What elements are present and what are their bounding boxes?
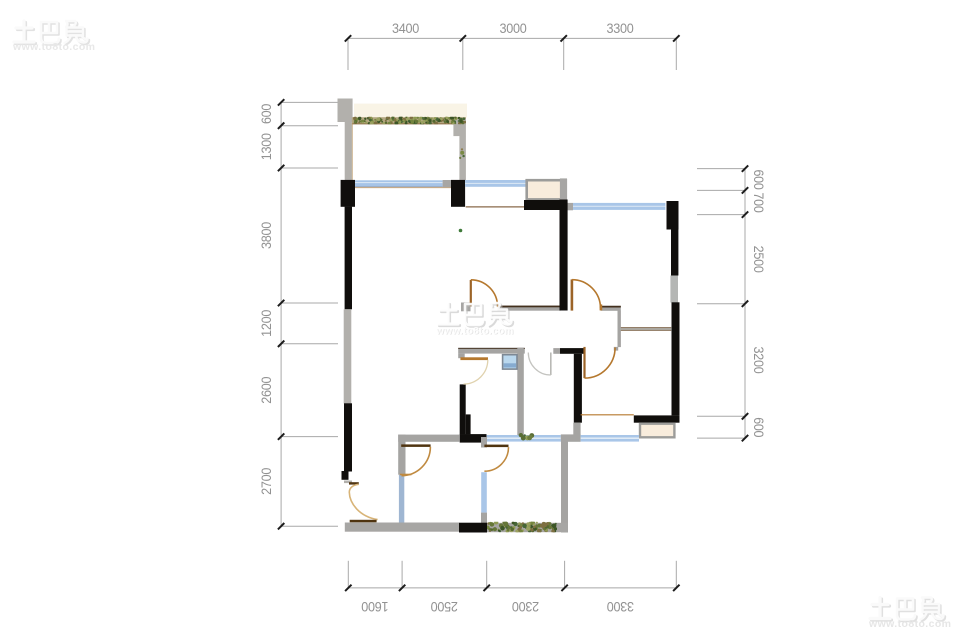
svg-text:2600: 2600 <box>258 376 274 403</box>
svg-text:600: 600 <box>751 170 767 190</box>
svg-text:3800: 3800 <box>258 222 274 249</box>
svg-text:600: 600 <box>258 104 274 124</box>
svg-text:3400: 3400 <box>392 20 419 36</box>
svg-text:www.to8to.com: www.to8to.com <box>868 618 951 630</box>
svg-text:2500: 2500 <box>751 246 767 273</box>
svg-text:3000: 3000 <box>500 20 527 36</box>
svg-text:www.to8to.com: www.to8to.com <box>435 326 513 337</box>
svg-text:1300: 1300 <box>258 133 274 160</box>
svg-text:700: 700 <box>751 193 767 213</box>
svg-text:3300: 3300 <box>607 599 634 615</box>
svg-text:2300: 2300 <box>512 599 539 615</box>
svg-text:1200: 1200 <box>258 309 274 336</box>
svg-text:2500: 2500 <box>430 599 457 615</box>
svg-text:1600: 1600 <box>361 599 388 615</box>
svg-text:2700: 2700 <box>258 467 274 494</box>
svg-text:www.to8to.com: www.to8to.com <box>12 41 95 53</box>
svg-text:600: 600 <box>751 417 767 437</box>
svg-text:3300: 3300 <box>607 20 634 36</box>
svg-text:3200: 3200 <box>751 347 767 374</box>
